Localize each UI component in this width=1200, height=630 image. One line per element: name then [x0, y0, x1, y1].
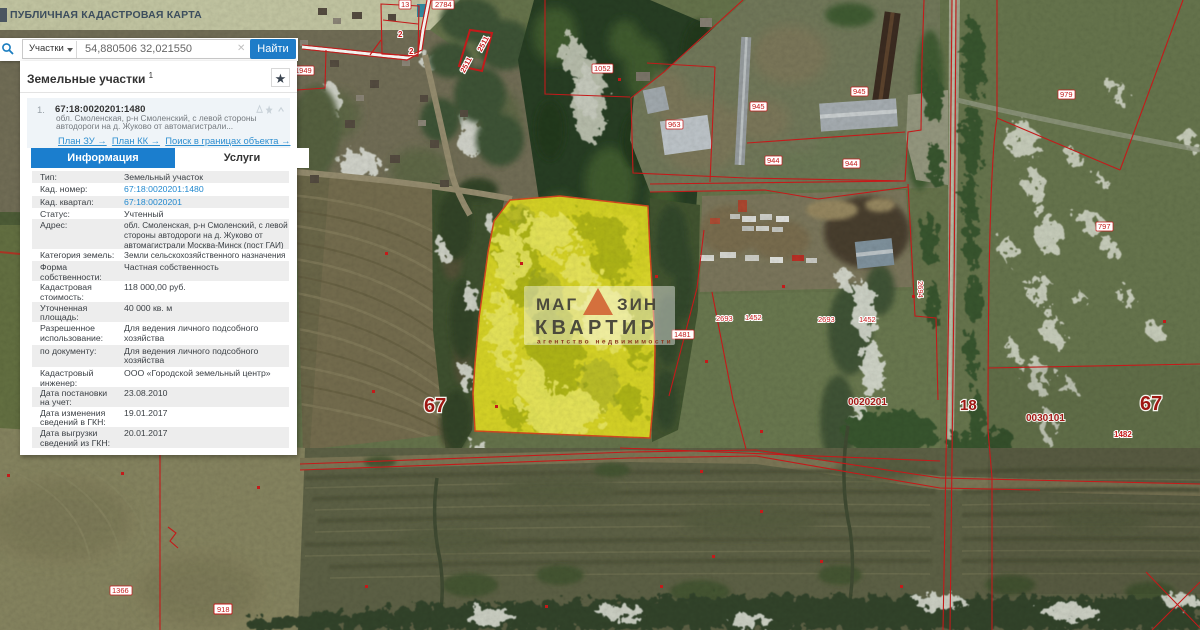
- svg-text:945: 945: [853, 87, 866, 96]
- svg-text:13: 13: [401, 0, 409, 9]
- svg-text:0020201: 0020201: [848, 397, 887, 408]
- svg-text:944: 944: [767, 156, 780, 165]
- svg-text:ЗИН: ЗИН: [617, 295, 658, 314]
- svg-text:0030101: 0030101: [1026, 413, 1065, 424]
- svg-text:1481: 1481: [674, 330, 691, 339]
- svg-text:1452: 1452: [859, 315, 876, 324]
- svg-text:1482: 1482: [1114, 430, 1132, 439]
- svg-text:67: 67: [424, 395, 446, 417]
- svg-text:КВАРТИР: КВАРТИР: [535, 317, 658, 339]
- svg-text:2: 2: [409, 47, 414, 56]
- svg-text:963: 963: [668, 120, 681, 129]
- svg-text:2: 2: [398, 30, 403, 39]
- svg-text:918: 918: [217, 605, 230, 614]
- svg-text:МАГ: МАГ: [536, 295, 578, 314]
- svg-text:агентство недвижимости: агентство недвижимости: [537, 339, 673, 346]
- svg-text:1366: 1366: [112, 586, 129, 595]
- svg-text:2693: 2693: [716, 314, 733, 323]
- svg-text:2784: 2784: [435, 0, 452, 9]
- svg-text:18: 18: [960, 397, 977, 414]
- svg-text:2693: 2693: [818, 315, 835, 324]
- svg-text:979: 979: [1060, 90, 1073, 99]
- svg-text:1052: 1052: [594, 64, 611, 73]
- svg-text:1949: 1949: [295, 66, 312, 75]
- svg-text:945: 945: [752, 102, 765, 111]
- svg-text:944: 944: [845, 159, 858, 168]
- svg-text:797: 797: [1098, 222, 1111, 231]
- svg-text:2694: 2694: [916, 281, 925, 298]
- svg-text:67: 67: [1140, 393, 1162, 415]
- svg-text:1452: 1452: [745, 313, 762, 322]
